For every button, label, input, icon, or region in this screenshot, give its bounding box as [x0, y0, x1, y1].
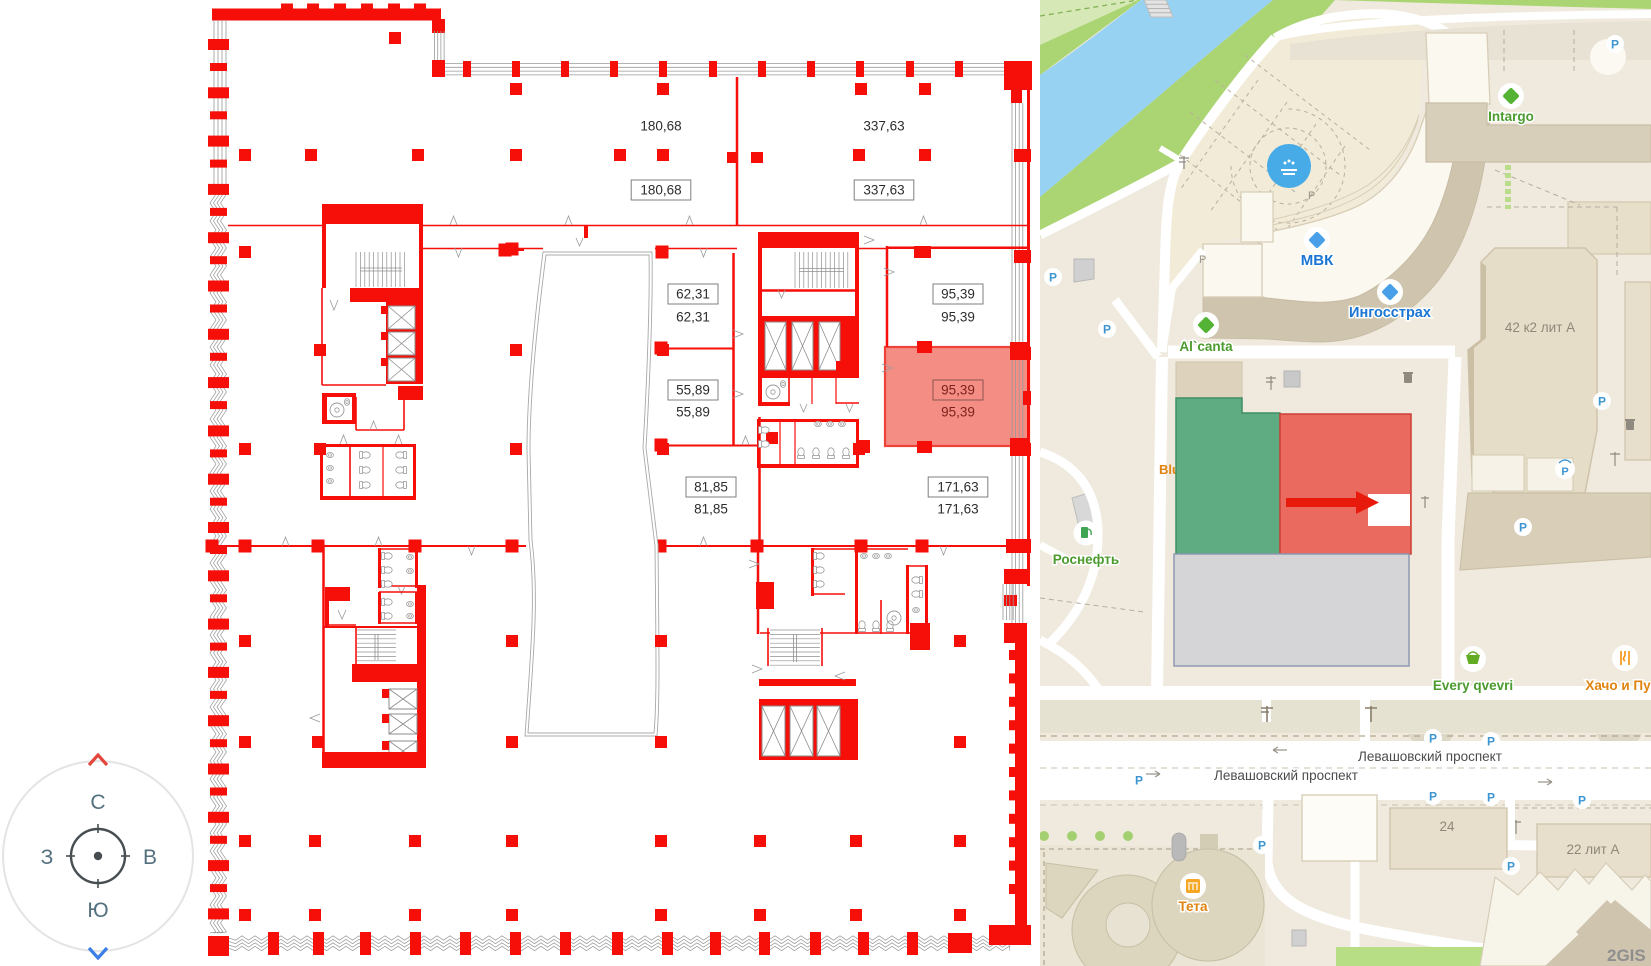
svg-text:P: P: [1507, 859, 1515, 873]
svg-text:Ингосстрах: Ингосстрах: [1349, 305, 1431, 321]
svg-text:Ю: Ю: [87, 899, 108, 922]
svg-text:337,63: 337,63: [863, 119, 904, 134]
svg-text:P: P: [1611, 37, 1619, 51]
svg-text:62,31: 62,31: [676, 310, 710, 325]
svg-text:Хачо и Пур: Хачо и Пур: [1585, 678, 1651, 693]
svg-text:95,39: 95,39: [941, 405, 975, 420]
svg-text:P: P: [1135, 773, 1143, 787]
svg-text:171,63: 171,63: [937, 502, 978, 517]
svg-text:В: В: [143, 846, 157, 869]
svg-text:З: З: [41, 846, 54, 869]
svg-text:180,68: 180,68: [640, 183, 681, 198]
svg-text:P: P: [1578, 793, 1586, 807]
svg-text:Al`canta: Al`canta: [1179, 339, 1233, 354]
svg-text:180,68: 180,68: [640, 119, 681, 134]
svg-text:P: P: [1308, 190, 1315, 202]
svg-text:P: P: [1258, 838, 1266, 852]
svg-text:Роснефть: Роснефть: [1053, 552, 1119, 567]
svg-text:Левашовский проспект: Левашовский проспект: [1214, 768, 1358, 783]
svg-text:P: P: [1429, 731, 1437, 745]
svg-text:P: P: [1487, 790, 1495, 804]
svg-text:24: 24: [1439, 819, 1455, 834]
svg-text:P: P: [1519, 520, 1527, 534]
svg-text:62,31: 62,31: [676, 287, 710, 302]
svg-text:55,89: 55,89: [676, 405, 710, 420]
svg-text:95,39: 95,39: [941, 383, 975, 398]
svg-text:337,63: 337,63: [863, 183, 904, 198]
svg-text:P: P: [1429, 789, 1437, 803]
svg-text:Intargo: Intargo: [1488, 109, 1534, 124]
svg-text:С: С: [90, 791, 105, 814]
svg-text:Левашовский проспект: Левашовский проспект: [1358, 749, 1502, 764]
svg-text:2GIS: 2GIS: [1607, 946, 1646, 965]
svg-text:P: P: [1199, 254, 1206, 266]
svg-text:81,85: 81,85: [694, 480, 728, 495]
svg-text:95,39: 95,39: [941, 287, 975, 302]
svg-text:22 лит А: 22 лит А: [1566, 842, 1619, 857]
svg-text:P: P: [1103, 322, 1111, 336]
svg-text:P: P: [1598, 394, 1606, 408]
svg-text:55,89: 55,89: [676, 383, 710, 398]
svg-text:P: P: [1487, 734, 1495, 748]
svg-text:171,63: 171,63: [937, 480, 978, 495]
svg-text:P: P: [1049, 270, 1057, 284]
svg-text:81,85: 81,85: [694, 502, 728, 517]
svg-text:P: P: [1561, 466, 1568, 478]
svg-text:95,39: 95,39: [941, 310, 975, 325]
svg-text:Every qvevri: Every qvevri: [1433, 678, 1513, 693]
svg-text:Тета: Тета: [1178, 899, 1208, 914]
svg-text:42 к2 лит А: 42 к2 лит А: [1505, 320, 1575, 335]
svg-text:МВК: МВК: [1301, 252, 1334, 269]
